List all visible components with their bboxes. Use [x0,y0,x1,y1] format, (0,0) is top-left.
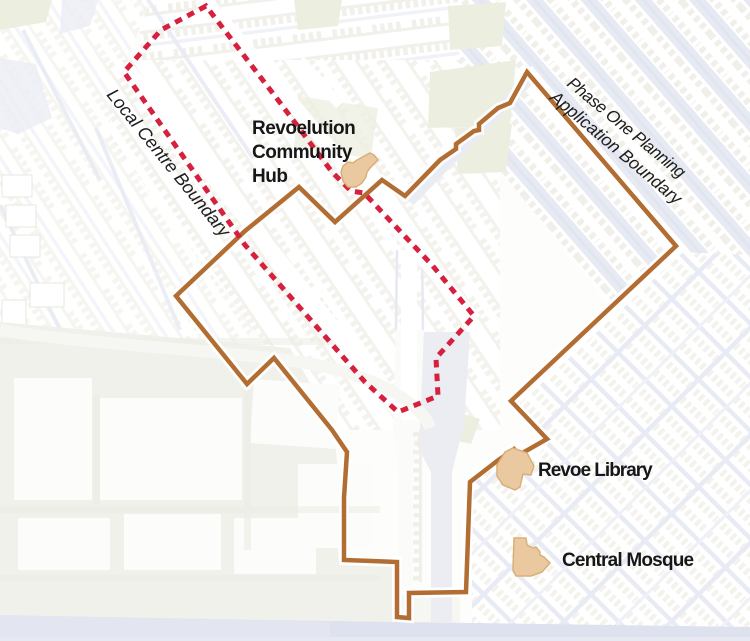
svg-text:Revoelution: Revoelution [252,118,355,139]
svg-text:Revoe Library: Revoe Library [538,460,653,481]
svg-text:Community: Community [252,142,353,163]
svg-text:Hub: Hub [252,166,287,187]
svg-text:Central Mosque: Central Mosque [562,550,694,571]
